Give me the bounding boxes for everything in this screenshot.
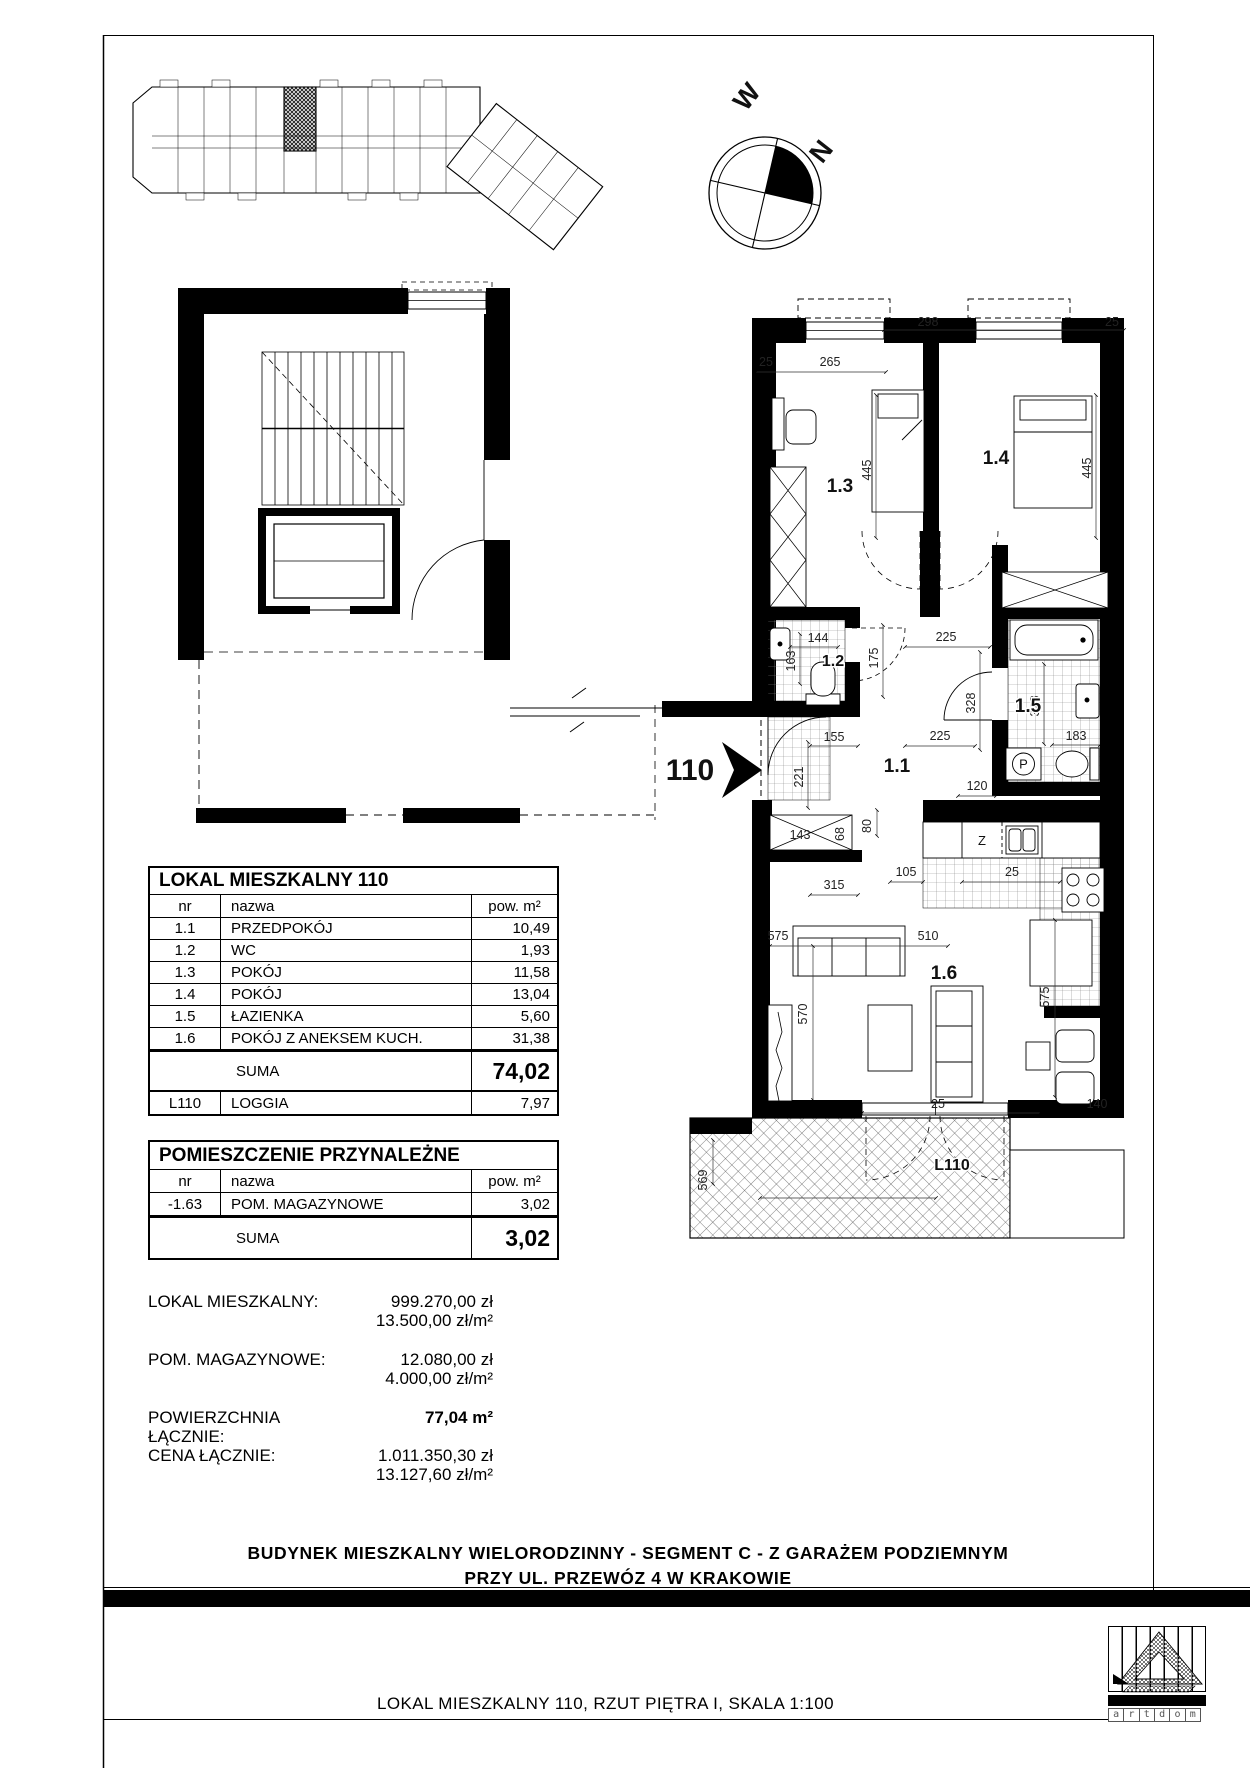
dishwasher-label: Z	[978, 833, 986, 848]
title-block-divider-bar	[103, 1590, 1250, 1607]
side-table	[1026, 1042, 1050, 1070]
table-row: 1.1 PRZEDPOKÓJ 10,49	[150, 918, 557, 940]
table-row: 1.3 POKÓJ 11,58	[150, 962, 557, 984]
dimension-label: 25	[759, 355, 773, 369]
stove	[1062, 868, 1104, 912]
apartment-area-table: LOKAL MIESZKALNY 110 nr nazwa pow. m² 1.…	[148, 866, 559, 1116]
dimension-label: 120	[967, 779, 988, 793]
logo-emblem	[1108, 1626, 1206, 1692]
compass-north-label: N	[803, 134, 839, 168]
dimension-label: 25	[931, 1097, 945, 1111]
tv-panel	[768, 1005, 792, 1101]
table-sum-row: SUMA 74,02	[150, 1050, 557, 1092]
dimension-label: 175	[867, 648, 881, 669]
room-1-4-furniture	[1002, 396, 1108, 608]
floor-plan-document-page: { "compass": { "west": "W", "north": "N"…	[0, 0, 1250, 1768]
column-header-nazwa: nazwa	[221, 898, 471, 915]
table-title: POMIESZCZENIE PRZYNALEŻNE	[150, 1142, 557, 1170]
building-title: BUDYNEK MIESZKALNY WIELORODZINNY - SEGME…	[103, 1541, 1153, 1591]
table-row: 1.4 POKÓJ 13,04	[150, 984, 557, 1006]
dimension-label: 68	[833, 827, 847, 841]
room-1-3-furniture	[770, 390, 924, 607]
price-value: 999.270,00 zł	[356, 1292, 493, 1311]
annex-room-table: POMIESZCZENIE PRZYNALEŻNE nr nazwa pow. …	[148, 1140, 559, 1260]
room-label-1-6: 1.6	[931, 963, 957, 984]
highlighted-unit-marker	[284, 87, 316, 151]
loggia	[690, 1103, 1124, 1238]
dimension-label: 221	[792, 767, 806, 788]
table-row: 1.2 WC 1,93	[150, 940, 557, 962]
price-unit-value: 13.500,00 zł/m²	[356, 1311, 493, 1330]
dimension-label: 569	[696, 1170, 710, 1191]
total-price-label: CENA ŁĄCZNIE:	[148, 1446, 356, 1465]
dining-table	[1030, 920, 1092, 986]
dimension-label: 510	[918, 929, 939, 943]
dimension-label: 80	[860, 819, 874, 833]
price-unit-value: 4.000,00 zł/m²	[356, 1369, 493, 1388]
logo-letter: m	[1185, 1708, 1201, 1722]
column-header-nr: nr	[150, 895, 221, 917]
entrance-marker: 110	[666, 742, 762, 798]
dimension-label: 575	[1038, 987, 1052, 1008]
compass-north-icon: W N	[709, 77, 839, 249]
logo-triangle-icon	[1109, 1627, 1207, 1693]
column-header-nazwa: nazwa	[221, 1173, 471, 1190]
dimension-label: 445	[860, 460, 874, 481]
dimension-label: 315	[824, 878, 845, 892]
dimension-label: 183	[1066, 729, 1087, 743]
dimension-label: 328	[964, 693, 978, 714]
total-price-value: 1.011.350,30 zł	[356, 1446, 493, 1465]
dimension-label: 140	[1087, 1097, 1108, 1111]
room-label-1-2: 1.2	[822, 653, 844, 670]
column-header-nr: nr	[150, 1170, 221, 1192]
dimension-label: 225	[936, 630, 957, 644]
logo-letter: o	[1169, 1708, 1185, 1722]
logo-wordmark: a r t d o m	[1108, 1708, 1206, 1722]
room-label-1-4: 1.4	[983, 448, 1010, 469]
coffee-table	[868, 1005, 912, 1071]
dimension-label: 25	[1005, 865, 1019, 879]
break-line-symbol	[570, 688, 586, 732]
room-label-loggia: L110	[934, 1157, 970, 1174]
armchair	[1056, 1030, 1094, 1062]
dimension-label: 570	[796, 1004, 810, 1025]
logo-letter: a	[1108, 1708, 1124, 1722]
dimension-label: 155	[824, 730, 845, 744]
dimension-label: 143	[790, 828, 811, 842]
column-header-pow: pow. m²	[471, 1170, 557, 1192]
artdom-logo: a r t d o m	[1108, 1626, 1206, 1722]
logo-letter: t	[1139, 1708, 1155, 1722]
dimension-label: 265	[820, 355, 841, 369]
stair-flight	[262, 352, 404, 505]
price-value: 12.080,00 zł	[356, 1350, 493, 1369]
total-area-label: POWIERZCHNIA ŁĄCZNIE:	[148, 1408, 356, 1446]
table-row-loggia: L110 LOGGIA 7,97	[150, 1092, 557, 1114]
total-area-value: 77,04 m²	[356, 1408, 493, 1446]
dimension-label: 25	[1105, 315, 1119, 329]
dimension-label: 163	[784, 651, 798, 672]
staircase-core-plan	[178, 282, 662, 823]
table-row: 1.6 POKÓJ Z ANEKSEM KUCH. 31,38	[150, 1028, 557, 1050]
entrance-number-label: 110	[666, 754, 714, 787]
table-row: -1.63 POM. MAGAZYNOWE 3,02	[150, 1193, 557, 1216]
sheet-title: LOKAL MIESZKALNY 110, RZUT PIĘTRA I, SKA…	[103, 1694, 1108, 1714]
price-label: POM. MAGAZYNOWE:	[148, 1350, 356, 1369]
room-label-1-1: 1.1	[884, 756, 911, 777]
building-title-line1: BUDYNEK MIESZKALNY WIELORODZINNY - SEGME…	[103, 1541, 1153, 1566]
table-title: LOKAL MIESZKALNY 110	[150, 868, 557, 895]
logo-black-bar	[1108, 1695, 1206, 1706]
compass-west-label: W	[727, 77, 767, 116]
building-overview-plan	[133, 80, 603, 250]
room-label-1-3: 1.3	[827, 476, 853, 497]
logo-letter: d	[1154, 1708, 1170, 1722]
entrance-arrow-icon	[722, 742, 762, 798]
price-label: LOKAL MIESZKALNY:	[148, 1292, 356, 1311]
washer-label: P	[1019, 757, 1028, 772]
logo-letter: r	[1123, 1708, 1139, 1722]
table-sum-row: SUMA 3,02	[150, 1216, 557, 1258]
total-price-unit-value: 13.127,60 zł/m²	[356, 1465, 493, 1484]
room-label-1-5: 1.5	[1015, 696, 1042, 717]
apartment-floor-plan: 110	[662, 299, 1124, 1238]
annex-total-value: 3,02	[471, 1218, 557, 1258]
dimension-label: 225	[930, 729, 951, 743]
pricing-block: LOKAL MIESZKALNY:999.270,00 zł 13.500,00…	[148, 1292, 493, 1484]
dimension-label: 105	[896, 865, 917, 879]
dimension-label: 298	[918, 315, 939, 329]
column-header-pow: pow. m²	[471, 895, 557, 917]
table-row: 1.5 ŁAZIENKA 5,60	[150, 1006, 557, 1028]
dimension-label: 575	[768, 929, 789, 943]
dimension-label: 144	[808, 631, 829, 645]
dimension-label: 445	[1080, 458, 1094, 479]
total-area-value: 74,02	[471, 1052, 557, 1090]
elevator-shaft	[258, 508, 400, 616]
building-title-line2: PRZY UL. PRZEWÓZ 4 W KRAKOWIE	[103, 1566, 1153, 1591]
